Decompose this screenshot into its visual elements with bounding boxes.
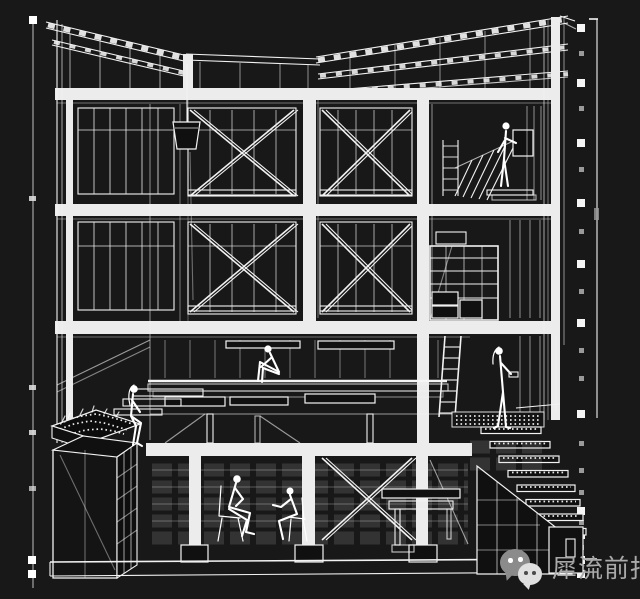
ladder-rack [443, 140, 458, 196]
platform-deck [114, 381, 470, 443]
watermark-text: 犀流前报 [552, 545, 640, 593]
dimension-line-right [577, 19, 599, 578]
roof-structure [46, 16, 576, 96]
section-drawing [0, 0, 640, 599]
wechat-icon [498, 545, 544, 593]
x-braced-bay [320, 222, 412, 314]
figure-seated-knees-up [258, 345, 279, 382]
shelving-rack [430, 232, 498, 320]
ladder [439, 336, 461, 417]
screenshot-root: 犀流前报 [0, 0, 640, 599]
storage-cabinet [53, 436, 137, 578]
dimension-line-left [28, 16, 37, 588]
x-braced-bay [320, 108, 412, 196]
marker-squares [577, 24, 585, 578]
x-braced-bay [188, 108, 298, 196]
watermark: 犀流前报 [498, 545, 640, 593]
x-braced-bay [188, 222, 298, 314]
